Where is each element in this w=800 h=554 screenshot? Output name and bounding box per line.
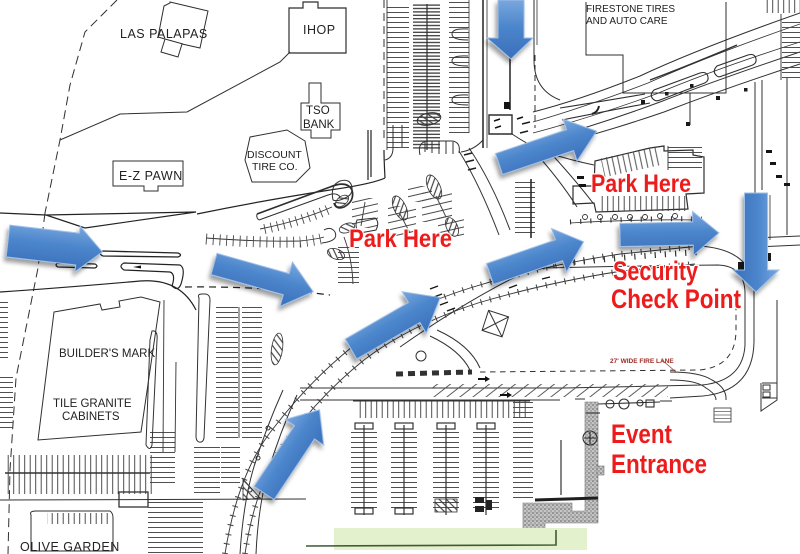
- svg-text:LAS PALAPAS: LAS PALAPAS: [120, 27, 208, 41]
- svg-text:Park Here: Park Here: [591, 170, 691, 198]
- svg-text:BUILDER'S MARK: BUILDER'S MARK: [59, 348, 155, 360]
- svg-text:TIRE CO.: TIRE CO.: [252, 161, 298, 173]
- svg-text:Security: Security: [613, 256, 698, 286]
- svg-text:Event: Event: [611, 419, 672, 449]
- svg-text:27' WIDE FIRE LANE: 27' WIDE FIRE LANE: [610, 358, 674, 365]
- svg-text:OLIVE GARDEN: OLIVE GARDEN: [20, 540, 120, 554]
- svg-text:E-Z PAWN: E-Z PAWN: [119, 169, 183, 183]
- svg-text:Check Point: Check Point: [611, 284, 741, 314]
- svg-text:DISCOUNT: DISCOUNT: [247, 149, 302, 161]
- svg-text:AND AUTO CARE: AND AUTO CARE: [586, 16, 668, 27]
- svg-text:IHOP: IHOP: [303, 23, 336, 37]
- svg-text:BANK: BANK: [303, 119, 335, 131]
- svg-text:TSO: TSO: [306, 105, 330, 117]
- svg-text:FIRESTONE TIRES: FIRESTONE TIRES: [586, 4, 675, 15]
- svg-text:CABINETS: CABINETS: [62, 411, 120, 423]
- svg-text:Park Here: Park Here: [349, 225, 452, 253]
- svg-text:TILE GRANITE: TILE GRANITE: [53, 398, 132, 410]
- svg-text:Entrance: Entrance: [611, 449, 707, 479]
